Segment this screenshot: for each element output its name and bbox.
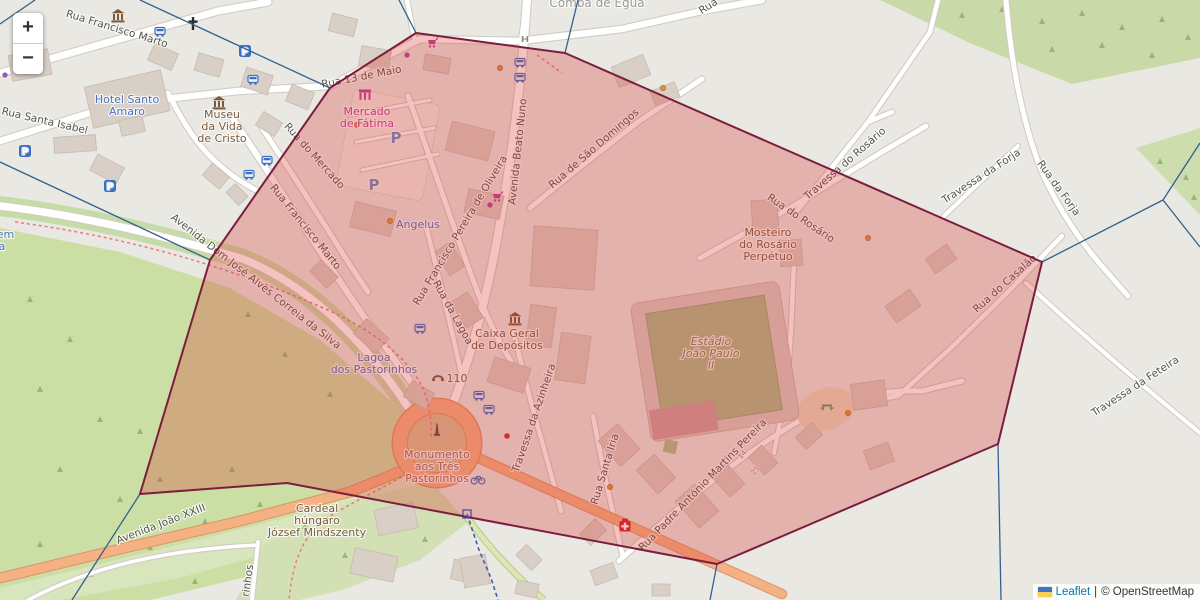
osm-copyright[interactable]: © OpenStreetMap (1101, 586, 1194, 598)
attribution-bar: Leaflet | © OpenStreetMap (1033, 584, 1200, 600)
attribution-separator: | (1094, 586, 1097, 598)
leaflet-link[interactable]: Leaflet (1056, 586, 1091, 598)
parking-icon: P (19, 145, 31, 157)
leaflet-map[interactable]: PPPPP Rua Francisco MartoRua Santa Isabe… (0, 0, 1200, 600)
pdot-icon (2, 72, 7, 77)
poi-label: Comba de Égua (549, 0, 644, 10)
zoom-control: + − (13, 13, 43, 74)
zoom-out-button[interactable]: − (13, 44, 43, 74)
building (53, 135, 96, 154)
svg-text:P: P (107, 182, 114, 192)
map-tiles: PPPPP Rua Francisco MartoRua Santa Isabe… (0, 0, 1200, 600)
ukraine-flag-icon (1038, 587, 1052, 597)
parking-icon: P (104, 180, 116, 192)
poi-label: Museuda Vidade Cristo (197, 108, 247, 145)
zoom-in-button[interactable]: + (13, 13, 43, 44)
svg-text:P: P (22, 147, 29, 157)
building (652, 584, 670, 596)
odot-icon (660, 85, 665, 90)
building (460, 554, 491, 588)
